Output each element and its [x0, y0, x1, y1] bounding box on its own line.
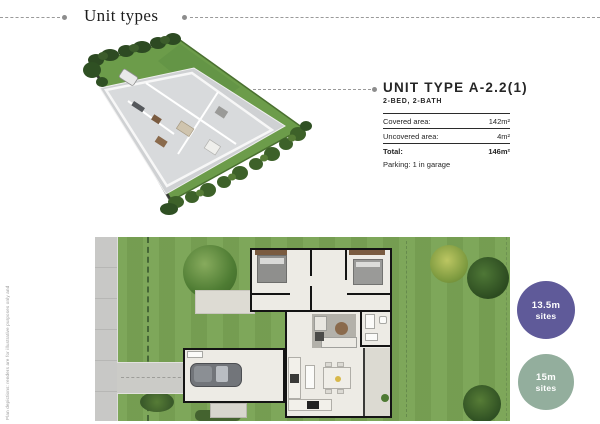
interior-wall	[347, 293, 390, 295]
toilet	[379, 316, 387, 324]
badge-sublabel: sites	[536, 311, 557, 321]
table-row: Uncovered area: 4m²	[383, 128, 510, 143]
connector-dot-icon	[62, 15, 67, 20]
interior-wall	[310, 286, 312, 310]
badge-sublabel: sites	[536, 383, 557, 393]
unit-info-panel: UNIT TYPE A-2.2(1) 2-BED, 2-BATH Covered…	[383, 80, 510, 169]
dimension-line	[406, 241, 407, 417]
brochure-page: Unit types Plan depictions: renders are …	[0, 0, 600, 424]
isometric-unit-render	[66, 26, 318, 222]
sofa	[321, 337, 357, 348]
header-dash-left	[0, 17, 60, 18]
row-value: 4m²	[497, 132, 510, 141]
chair	[337, 362, 344, 367]
entry-path	[195, 290, 255, 314]
bush	[140, 392, 174, 412]
unit-bed-bath: 2-BED, 2-BATH	[383, 98, 510, 105]
tree	[467, 257, 509, 299]
tree	[430, 245, 468, 283]
site-badge-15m: 15m sites	[518, 354, 574, 410]
page-title: Unit types	[84, 6, 158, 26]
bush	[463, 385, 501, 421]
row-label: Uncovered area:	[383, 132, 438, 141]
car	[190, 361, 240, 387]
interior-wall	[310, 250, 312, 276]
unit-type-title: UNIT TYPE A-2.2(1)	[383, 80, 510, 95]
connector-dot-icon	[372, 87, 377, 92]
pouf	[335, 322, 348, 335]
porch-step	[210, 403, 247, 418]
total-label: Total:	[383, 147, 403, 156]
vanity	[365, 333, 378, 341]
disclaimer-text: Plan depictions: renders are for illustr…	[5, 284, 10, 420]
bed	[353, 259, 383, 285]
interior-wall	[360, 310, 362, 346]
floor-plan	[95, 237, 510, 421]
chair	[337, 389, 344, 394]
shower	[365, 314, 375, 329]
row-label: Covered area:	[383, 117, 431, 126]
table-row: Covered area: 142m²	[383, 113, 510, 128]
connector-dot-icon	[182, 15, 187, 20]
driveway	[117, 362, 190, 394]
total-value: 146m²	[488, 147, 510, 156]
patio	[363, 348, 390, 416]
table-row-total: Total: 146m²	[383, 143, 510, 158]
badge-label: 13.5m	[532, 300, 560, 311]
site-badge-13-5m: 13.5m sites	[517, 281, 575, 339]
wardrobe	[349, 250, 385, 255]
kitchen-counter	[288, 357, 301, 399]
interior-wall	[360, 345, 392, 347]
interior-wall	[252, 293, 290, 295]
chair	[325, 389, 332, 394]
right-boundary-line	[506, 237, 507, 421]
chair	[325, 362, 332, 367]
unit-area-table: Covered area: 142m² Uncovered area: 4m² …	[383, 113, 510, 158]
panel-connector-dash	[253, 89, 371, 90]
kitchen-island	[305, 365, 315, 389]
row-value: 142m²	[489, 117, 510, 126]
tv-unit	[315, 332, 324, 341]
interior-wall	[345, 250, 347, 280]
header-dash-right	[190, 17, 600, 18]
kitchen-counter	[288, 399, 332, 411]
dining-table	[323, 367, 351, 389]
isometric-render-graphic	[66, 26, 318, 222]
armchair	[314, 316, 327, 331]
road-strip	[95, 237, 118, 421]
bed	[257, 255, 287, 283]
parking-note: Parking: 1 in garage	[383, 160, 510, 169]
storage-shelf	[187, 351, 203, 358]
badge-label: 15m	[536, 372, 556, 383]
